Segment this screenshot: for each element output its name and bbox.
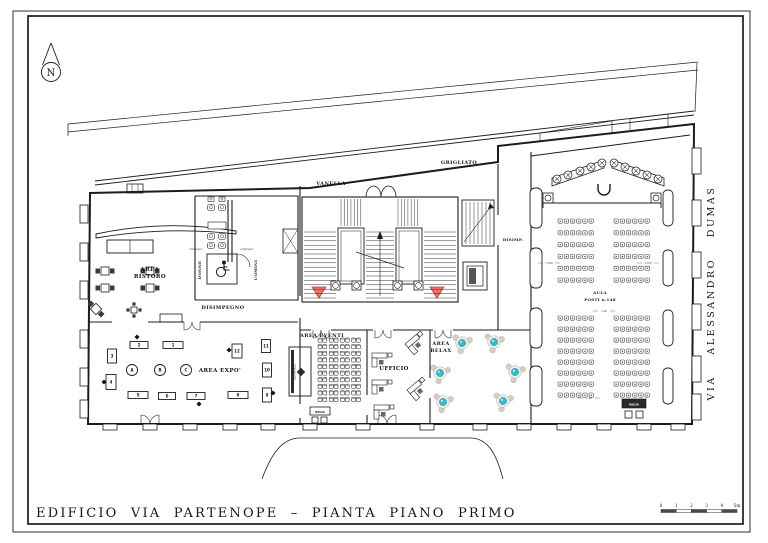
chair	[356, 351, 360, 355]
seat-dot	[615, 232, 617, 234]
stair-landing	[396, 228, 422, 284]
chair	[334, 378, 338, 382]
chair	[345, 364, 349, 368]
pilaster	[80, 243, 88, 261]
chair	[352, 371, 356, 375]
chair	[318, 378, 322, 382]
seat-dot	[572, 350, 574, 352]
seat-dot	[640, 268, 642, 270]
pilaster	[637, 424, 651, 430]
seat-dot	[634, 317, 636, 319]
chair	[132, 302, 135, 305]
chair	[352, 345, 356, 349]
seat-dot	[640, 279, 642, 281]
chair	[110, 286, 115, 291]
pilaster	[557, 424, 571, 430]
extinguisher-marker	[196, 401, 201, 406]
chair	[356, 345, 360, 349]
north-arrow-icon: N	[42, 43, 61, 82]
aula-pier	[663, 368, 673, 404]
pilaster	[692, 394, 701, 420]
seat-dot	[559, 268, 561, 270]
seat-dot	[615, 256, 617, 258]
seat-dot	[622, 317, 624, 319]
pilaster	[183, 424, 197, 430]
chair	[340, 397, 344, 401]
office-chair	[379, 360, 384, 365]
stage-seat	[598, 159, 606, 167]
office-chair	[417, 388, 423, 394]
seat-dot	[572, 279, 574, 281]
chair	[323, 358, 327, 362]
seat-dot	[634, 220, 636, 222]
seat-dot	[646, 361, 648, 363]
pilaster	[80, 205, 88, 223]
seat-dot	[615, 328, 617, 330]
chair	[318, 384, 322, 388]
seat-dot	[559, 350, 561, 352]
seat-dot	[640, 232, 642, 234]
seat-dot	[640, 317, 642, 319]
table-highlight	[441, 400, 443, 402]
seat-dot	[628, 339, 630, 341]
stage-seat	[587, 163, 595, 171]
chair	[352, 397, 356, 401]
chair	[318, 371, 322, 375]
pilaster	[80, 330, 88, 348]
chair	[340, 384, 344, 388]
seat-dot	[566, 317, 568, 319]
seat-dot	[628, 317, 630, 319]
seat-dot	[584, 317, 586, 319]
scale-tick-label: 4	[720, 503, 723, 508]
label-ufficio: UFFICIO	[379, 366, 409, 372]
desk-return	[372, 358, 377, 367]
chair	[126, 308, 129, 311]
pilaster	[80, 281, 88, 299]
pilaster	[223, 424, 237, 430]
seat-dot	[615, 339, 617, 341]
seat-dot	[634, 328, 636, 330]
chair	[340, 364, 344, 368]
desk-workstation	[372, 380, 392, 394]
chair	[318, 345, 322, 349]
seat-dot	[622, 328, 624, 330]
stage-seat	[576, 167, 584, 175]
chair	[340, 391, 344, 395]
page-title: EDIFICIO VIA PARTENOPE – PIANTA PIANO PR…	[36, 506, 517, 521]
chair	[323, 397, 327, 401]
seat-dot	[628, 328, 630, 330]
seat-dot	[634, 279, 636, 281]
chair	[334, 391, 338, 395]
chair	[345, 397, 349, 401]
seat-dot	[578, 328, 580, 330]
seat-dot	[622, 394, 624, 396]
chair	[345, 384, 349, 388]
label-disimp: DISIMP.	[503, 237, 524, 242]
seat-dot	[572, 383, 574, 385]
seat-dot	[622, 279, 624, 281]
desk-workstation	[407, 377, 431, 401]
seat-dot	[628, 372, 630, 374]
chair	[345, 345, 349, 349]
dim-label: 1.20	[601, 309, 607, 313]
chair	[340, 371, 344, 375]
table-top	[131, 307, 137, 313]
door-arc	[383, 330, 391, 338]
seat-dot	[646, 317, 648, 319]
seat-dot	[559, 244, 561, 246]
seat-dot	[566, 328, 568, 330]
chair	[356, 338, 360, 342]
desk-return	[372, 385, 377, 394]
table-highlight	[438, 371, 440, 373]
chair	[356, 397, 360, 401]
seat-dot	[622, 268, 624, 270]
expo-stand-number: 5	[137, 393, 140, 398]
seat-dot	[634, 244, 636, 246]
seat-dot	[559, 361, 561, 363]
expo-stand-number: 4	[110, 380, 113, 385]
chair	[340, 358, 344, 362]
seat-dot	[559, 232, 561, 234]
chair	[329, 345, 333, 349]
seat-dot	[559, 372, 561, 374]
aula-pier	[663, 190, 673, 226]
pilaster	[692, 200, 701, 226]
toilet-icon	[208, 243, 215, 249]
extinguisher-marker	[226, 347, 231, 352]
seat-dot	[634, 350, 636, 352]
wc-fixtures	[208, 197, 227, 249]
table-highlight	[492, 340, 494, 342]
desk-workstation	[372, 353, 392, 367]
seat-dot	[590, 350, 592, 352]
seat-dot	[622, 256, 624, 258]
chair	[329, 364, 333, 368]
sink-icon	[219, 197, 225, 202]
pilaster	[692, 148, 701, 174]
door-arc	[150, 415, 159, 424]
seat-dot	[640, 361, 642, 363]
seat-dot	[566, 350, 568, 352]
seat-dot	[628, 220, 630, 222]
floor-plan-page: N	[0, 0, 768, 543]
seat-dot	[640, 394, 642, 396]
seat-dot	[572, 394, 574, 396]
pilaster	[473, 424, 487, 430]
seat-dot	[566, 361, 568, 363]
seat-dot	[615, 244, 617, 246]
aula-pier	[530, 366, 542, 406]
pilaster	[356, 424, 370, 430]
seat-dot	[566, 372, 568, 374]
stair-landing	[338, 228, 364, 284]
chair	[323, 391, 327, 395]
seat-dot	[590, 394, 592, 396]
desk	[372, 353, 387, 358]
seat-dot	[578, 372, 580, 374]
seat-dot	[628, 394, 630, 396]
chair	[352, 351, 356, 355]
chair	[323, 384, 327, 388]
aula-pier	[663, 310, 673, 346]
seat-dot	[634, 372, 636, 374]
seat-dot	[615, 220, 617, 222]
seat-dot	[628, 383, 630, 385]
toilet-icon	[219, 205, 226, 211]
chair	[334, 397, 338, 401]
stair-main	[304, 199, 456, 298]
seat-dot	[628, 232, 630, 234]
chair	[334, 371, 338, 375]
pilaster	[103, 424, 117, 430]
expo-stand-number: 2	[138, 343, 141, 348]
seat-dot	[640, 256, 642, 258]
aula-seats	[558, 219, 649, 397]
seat-dot	[615, 279, 617, 281]
seat-dot	[646, 256, 648, 258]
seat-dot	[615, 268, 617, 270]
desk-workstation	[405, 331, 429, 355]
stair-arrow-icon	[488, 203, 494, 209]
chair	[352, 358, 356, 362]
expo-stand-number: 10	[264, 368, 270, 373]
label-uomini: UOMINI	[253, 260, 258, 281]
seat-dot	[640, 220, 642, 222]
dim-label: 1.700	[644, 261, 652, 265]
expo-circle-letter: B	[158, 368, 161, 373]
seat-dot	[566, 268, 568, 270]
chair	[323, 345, 327, 349]
ledwall-label: LEDWALL	[293, 363, 297, 381]
seat-dot	[584, 339, 586, 341]
chair	[96, 286, 101, 291]
pilaster	[692, 356, 701, 382]
extinguisher-marker	[134, 334, 139, 339]
table-highlight	[501, 399, 503, 401]
chair	[318, 358, 322, 362]
desk	[374, 405, 389, 410]
seat-dot	[634, 383, 636, 385]
chair	[345, 378, 349, 382]
chair	[345, 358, 349, 362]
aula-pier	[663, 250, 673, 286]
seat-dot	[622, 232, 624, 234]
chair	[334, 351, 338, 355]
seat-dot	[622, 372, 624, 374]
seat-dot	[622, 244, 624, 246]
pilaster	[597, 424, 611, 430]
seat-dot	[634, 256, 636, 258]
seat-dot	[646, 394, 648, 396]
seat-dot	[590, 220, 592, 222]
pilaster	[80, 368, 88, 386]
chair	[334, 358, 338, 362]
toilet-icon	[208, 234, 215, 240]
seat-dot	[572, 268, 574, 270]
seat-dot	[566, 220, 568, 222]
door-arc	[387, 415, 396, 424]
chair	[356, 378, 360, 382]
label-vanella: VANELLA	[315, 181, 345, 187]
scale-segment	[661, 510, 676, 513]
seat-dot	[628, 244, 630, 246]
aula-pier	[530, 308, 542, 348]
door-arc	[435, 330, 443, 338]
table-highlight	[513, 370, 515, 372]
stage-seat	[632, 167, 640, 175]
chair	[141, 286, 146, 291]
seat-dot	[584, 220, 586, 222]
seat-dot	[584, 268, 586, 270]
seat-dot	[646, 372, 648, 374]
label-area-ristoro-2: RISTORO	[134, 274, 166, 280]
sidewalk-curve	[262, 438, 503, 479]
seat-dot	[628, 361, 630, 363]
seat-dot	[615, 361, 617, 363]
seat-dot	[578, 256, 580, 258]
pilaster	[692, 304, 701, 330]
chair	[356, 358, 360, 362]
expo-stand-number: 9	[266, 393, 269, 398]
label-area-eventi: AREA EVENTI	[299, 333, 344, 339]
cabinet	[388, 353, 392, 357]
seat-dot	[578, 350, 580, 352]
seat-dot	[590, 256, 592, 258]
label-aula-1: AULA	[592, 290, 607, 295]
seat-dot	[615, 372, 617, 374]
door-arc	[141, 415, 150, 424]
table	[96, 267, 115, 275]
label-area-ristoro-1: AREA	[140, 267, 160, 273]
seat-dot	[646, 232, 648, 234]
stage-seat	[610, 159, 618, 167]
seat-dot	[628, 268, 630, 270]
seat-dot	[578, 361, 580, 363]
table-highlight	[460, 341, 462, 343]
seat-dot	[590, 361, 592, 363]
seat-dot	[584, 244, 586, 246]
seat-dot	[640, 244, 642, 246]
chair	[345, 371, 349, 375]
seat-dot	[622, 339, 624, 341]
stair-marker-right	[430, 287, 444, 298]
seat-dot	[640, 372, 642, 374]
chair	[329, 397, 333, 401]
podium-u-icon	[598, 184, 610, 195]
seat-dot	[622, 383, 624, 385]
seat-dot	[566, 279, 568, 281]
seat-dot	[578, 244, 580, 246]
seat-dot	[566, 244, 568, 246]
chair	[318, 351, 322, 355]
chair	[334, 364, 338, 368]
chair	[329, 391, 333, 395]
stage-seat	[654, 175, 662, 183]
seat-dot	[615, 394, 617, 396]
chair	[323, 364, 327, 368]
seat-dot	[640, 339, 642, 341]
seat-dot	[578, 317, 580, 319]
round-table	[511, 368, 518, 375]
label-donne: DONNE	[197, 261, 202, 280]
label-area-relax-1: AREA	[431, 341, 449, 347]
seat-dot	[640, 328, 642, 330]
chair	[352, 378, 356, 382]
seat-dot	[584, 279, 586, 281]
expo-stand-number: 12	[234, 349, 240, 354]
seat-dot	[634, 232, 636, 234]
label-grigliato: GRIGLIATO	[441, 160, 477, 166]
office-chair	[415, 342, 421, 348]
seat-dot	[646, 350, 648, 352]
round-table	[436, 369, 443, 376]
seat-dot	[584, 256, 586, 258]
seat-dot	[590, 372, 592, 374]
pilaster	[517, 424, 531, 430]
toilet-icon	[219, 234, 226, 240]
desk	[372, 380, 387, 385]
chair	[340, 351, 344, 355]
chair	[318, 364, 322, 368]
chair	[329, 351, 333, 355]
cabinet	[390, 405, 394, 409]
north-label: N	[47, 68, 56, 79]
chair	[340, 345, 344, 349]
desk-workstation	[374, 405, 394, 419]
seat-dot	[590, 328, 592, 330]
seat-dot	[646, 328, 648, 330]
stair-marker-left	[312, 287, 326, 298]
seat-dot	[572, 372, 574, 374]
expo-stand-number: 3	[111, 354, 114, 359]
table-top	[101, 284, 109, 292]
seat-dot	[559, 394, 561, 396]
regia-aula-box: REGIA	[622, 399, 646, 418]
scale-tick-label: 5m	[734, 503, 741, 508]
label-disimpegno: DISIMPEGNO	[202, 305, 245, 311]
stage-seat	[621, 163, 629, 171]
seat-dot	[572, 244, 574, 246]
building-outline	[88, 124, 694, 424]
seat-dot	[578, 279, 580, 281]
seat-dot	[566, 339, 568, 341]
chair	[329, 371, 333, 375]
table-top	[101, 267, 109, 275]
pilaster	[261, 424, 275, 430]
seat-dot	[640, 350, 642, 352]
dim-label: 1.700	[545, 261, 553, 265]
scale-segment	[691, 510, 706, 513]
sink-icon	[208, 197, 214, 202]
seat-dot	[634, 394, 636, 396]
scale-segment	[722, 510, 737, 513]
table	[96, 284, 115, 292]
expo-stand-number: 7	[195, 394, 198, 399]
wc-counter	[208, 222, 226, 229]
chair	[329, 358, 333, 362]
regia-eventi-label: REGIA	[315, 410, 325, 414]
seat-dot	[559, 328, 561, 330]
seat-dot	[566, 256, 568, 258]
round-table	[458, 339, 465, 346]
expo-stand-number: 6	[166, 394, 169, 399]
seat-dot	[572, 256, 574, 258]
chair	[334, 384, 338, 388]
door-arc	[192, 322, 200, 330]
